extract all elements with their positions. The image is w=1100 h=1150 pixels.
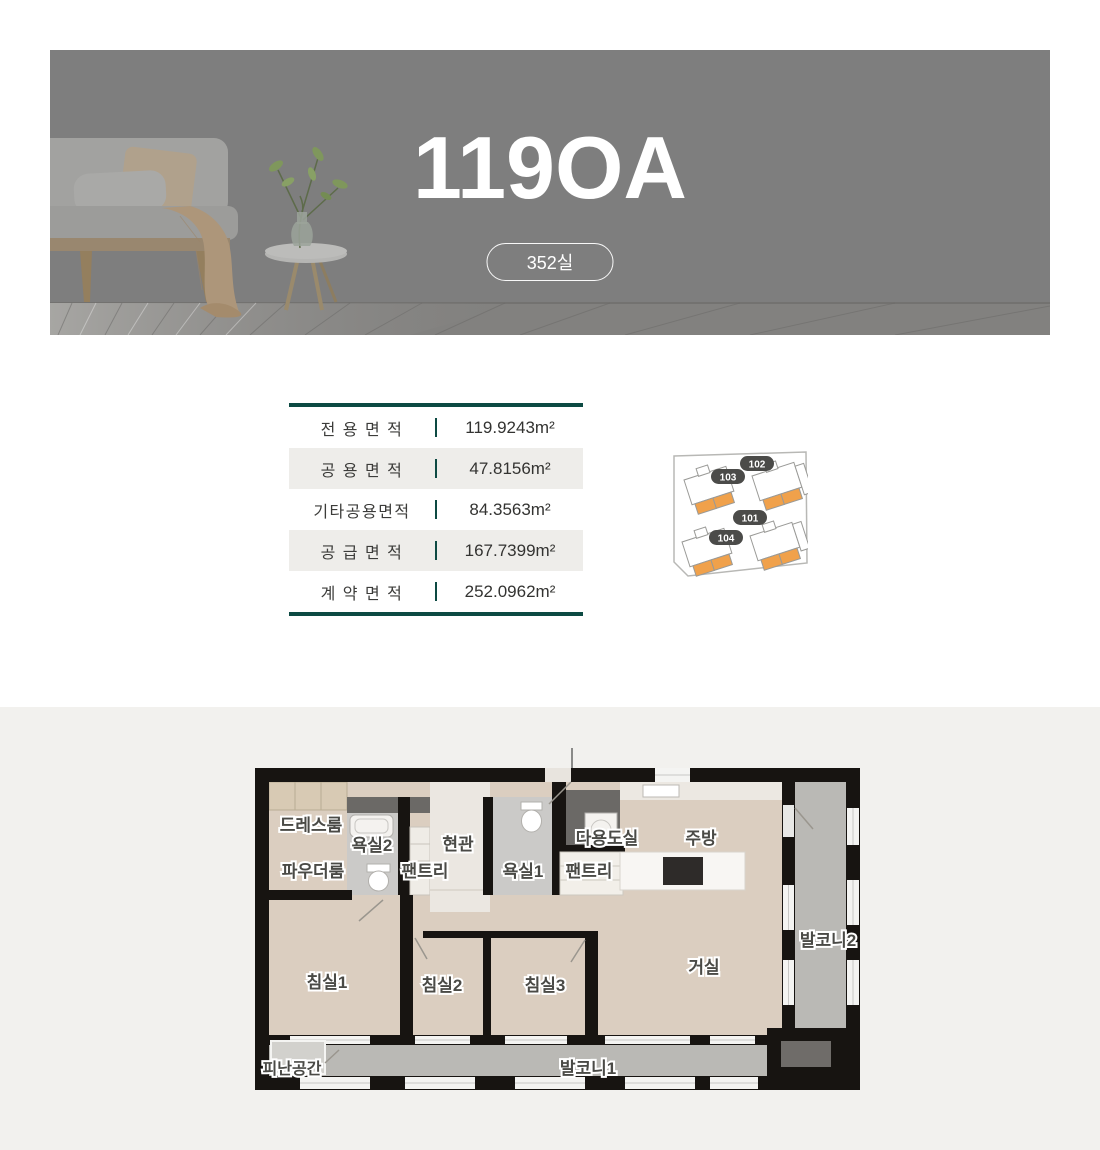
area-row-label: 공 용 면 적 [289, 457, 435, 481]
table-row: 공 용 면 적 47.8156m² [289, 448, 583, 489]
svg-text:102: 102 [749, 460, 766, 471]
floor-plan: 드레스룸 욕실2 현관 파우더룸 팬트리 욕실1 다용도실 팬트리 주방 발코니… [255, 745, 860, 1090]
svg-text:103: 103 [720, 473, 737, 484]
room-label-powderroom: 파우더룸 [282, 862, 345, 881]
area-row-label: 기타공용면적 [289, 498, 435, 522]
unit-count-badge: 352실 [487, 243, 614, 281]
unit-badge-102: 102 [740, 456, 774, 471]
room-label-living: 거실 [688, 958, 719, 977]
room-label-balcony1: 발코니1 [560, 1059, 616, 1078]
area-row-value: 119.9243m² [437, 418, 583, 438]
svg-text:104: 104 [718, 534, 735, 545]
area-row-label: 계 약 면 적 [289, 580, 435, 604]
key-plan-minimap: 102 103 101 104 [668, 450, 808, 578]
area-row-value: 252.0962m² [437, 582, 583, 602]
table-row: 계 약 면 적 252.0962m² [289, 571, 583, 612]
room-label-balcony2: 발코니2 [800, 931, 856, 950]
room-label-utility: 다용도실 [576, 829, 639, 848]
area-row-label: 공 급 면 적 [289, 539, 435, 563]
svg-text:101: 101 [742, 514, 759, 525]
table-row: 기타공용면적 84.3563m² [289, 489, 583, 530]
room-label-pantry2: 팬트리 [566, 862, 613, 881]
unit-count-label: 352실 [527, 249, 574, 275]
unit-type-title: 119OA [50, 124, 1050, 212]
room-label-kitchen: 주방 [685, 829, 717, 848]
area-spec-table: 전 용 면 적 119.9243m² 공 용 면 적 47.8156m² 기타공… [289, 403, 583, 616]
room-label-bedroom3: 침실3 [525, 975, 566, 995]
area-row-label: 전 용 면 적 [289, 416, 435, 440]
room-label-bath2: 욕실2 [352, 836, 393, 855]
area-row-value: 167.7399m² [437, 541, 583, 561]
room-label-pantry1: 팬트리 [402, 862, 449, 881]
area-row-value: 47.8156m² [437, 459, 583, 479]
room-label-bath1: 욕실1 [503, 862, 544, 881]
table-row: 공 급 면 적 167.7399m² [289, 530, 583, 571]
unit-type-page: 119OA 352실 전 용 면 적 119.9243m² 공 용 면 적 47… [0, 0, 1100, 1150]
room-label-bedroom1: 침실1 [307, 972, 348, 992]
area-row-value: 84.3563m² [437, 500, 583, 520]
hero-banner: 119OA 352실 [50, 50, 1050, 335]
room-label-bedroom2: 침실2 [422, 975, 463, 995]
unit-badge-103: 103 [711, 469, 745, 484]
unit-badge-101: 101 [733, 510, 767, 525]
unit-badge-104: 104 [709, 530, 743, 545]
room-label-entrance: 현관 [442, 835, 474, 854]
room-label-dressroom: 드레스룸 [280, 816, 343, 835]
room-label-refuge: 피난공간 [263, 1060, 322, 1078]
table-row: 전 용 면 적 119.9243m² [289, 407, 583, 448]
